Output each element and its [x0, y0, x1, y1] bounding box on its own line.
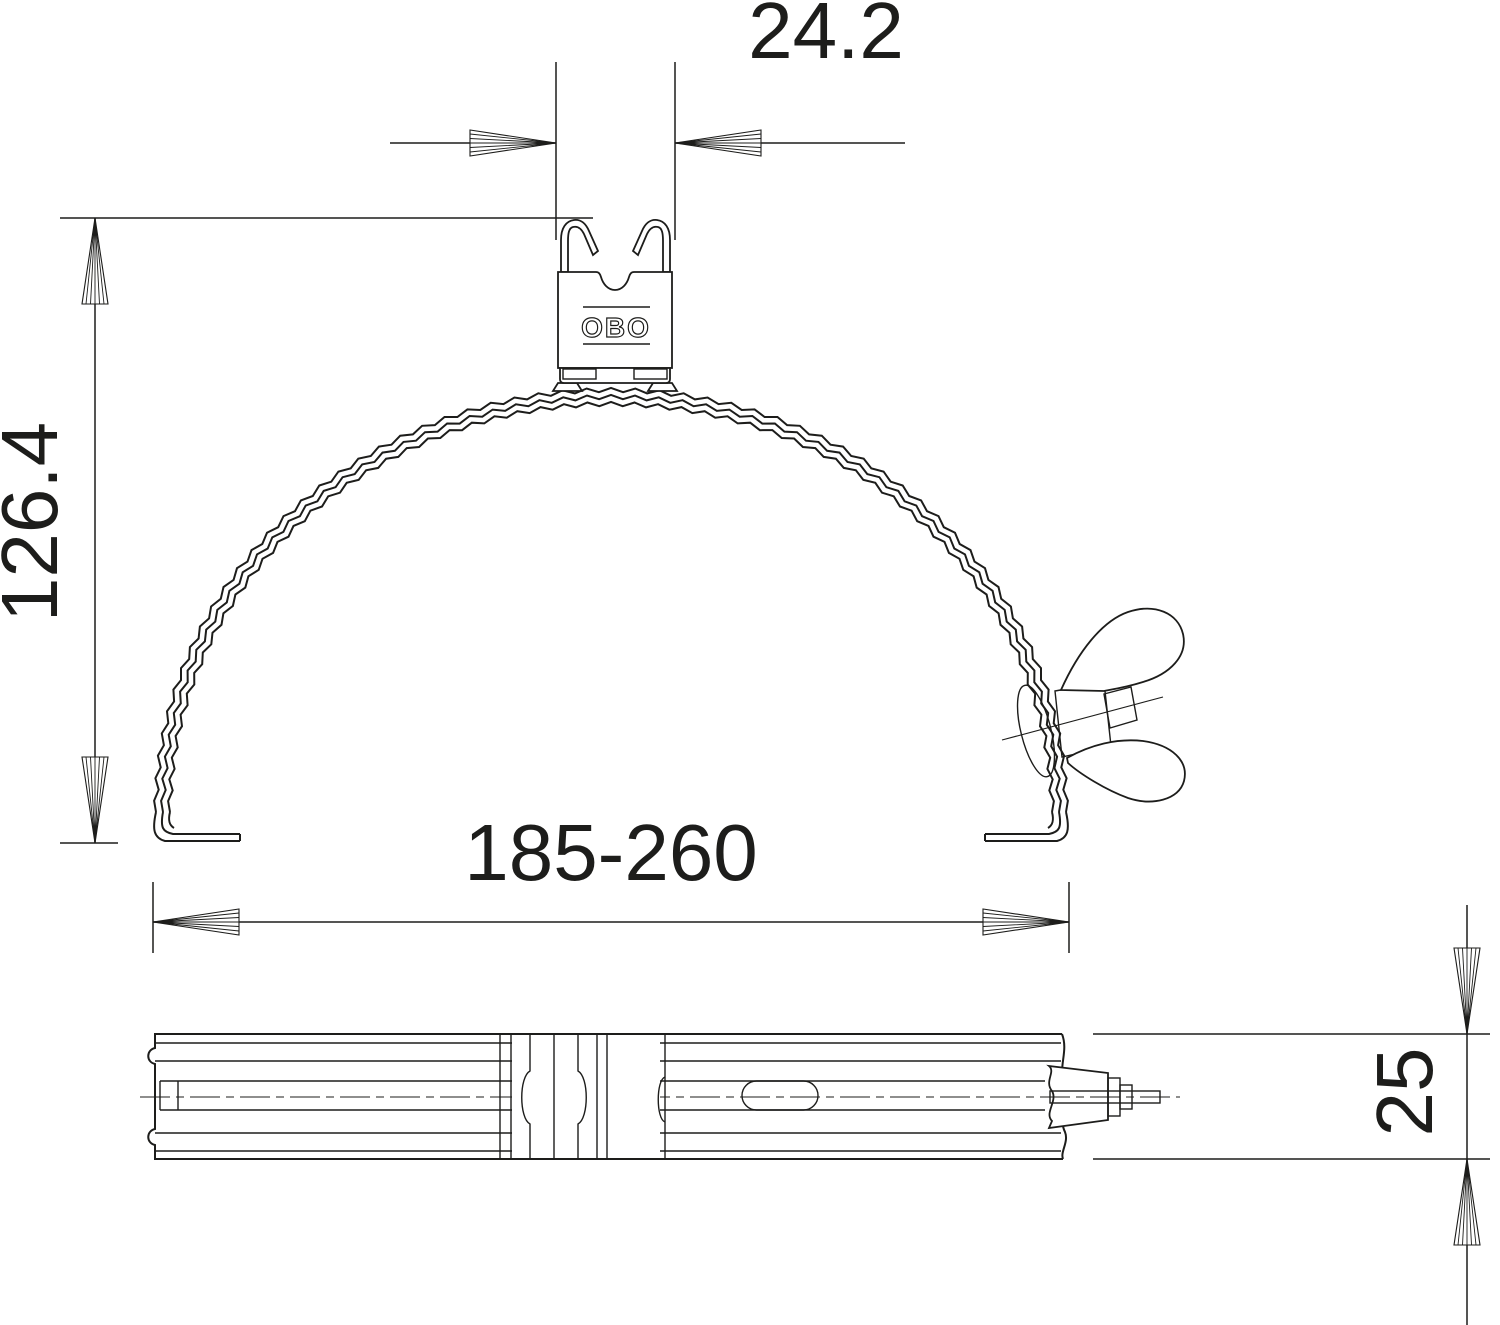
clip-flange: [560, 368, 670, 383]
dimension-arrow: [675, 130, 761, 156]
nut-square: [1104, 687, 1137, 728]
obo-logo: OBO: [581, 307, 651, 344]
band-foot-left: [154, 812, 240, 841]
plan-view: [140, 1034, 1490, 1159]
front-view: OBO: [154, 220, 1185, 841]
dimension-overall-height: 126.4: [0, 218, 593, 843]
wing-nut-plan: [1040, 1066, 1177, 1128]
wing-upper: [1061, 609, 1184, 691]
dome-band: [154, 388, 1068, 841]
dimension-arrow: [82, 757, 108, 843]
logo-text: OBO: [581, 312, 651, 343]
dimension-label-clamping-range: 185-260: [464, 808, 758, 897]
dimension-arrow: [153, 909, 239, 935]
clip-prong-right: [633, 220, 670, 272]
wing-nut-front: [1002, 609, 1185, 802]
dimension-arrow: [82, 218, 108, 304]
dimension-clamping-range: 185-260: [153, 808, 1069, 953]
adjustment-slot: [742, 1081, 818, 1110]
band-arc-outer: [154, 388, 1068, 812]
drawing-canvas: OBO: [0, 0, 1500, 1325]
clip-foot-right: [648, 383, 677, 391]
bolt-axis-line: [1002, 697, 1163, 740]
clip-prong-left: [561, 220, 598, 272]
band-arc-middle: [161, 395, 1061, 812]
clip-plan: [500, 1034, 665, 1159]
clip-foot-left: [553, 383, 582, 391]
dimensions: 24.2 126.4 185-260 25: [0, 0, 1480, 1325]
dimension-arrow: [1454, 1159, 1480, 1245]
dimension-arrow: [983, 909, 1069, 935]
band-arc-inner: [168, 402, 1054, 812]
technical-drawing: OBO: [0, 0, 1500, 1325]
dimension-clip-width: 24.2: [390, 0, 905, 240]
dimension-label-overall-height: 126.4: [0, 422, 74, 622]
dimension-label-band-width: 25: [1360, 1048, 1449, 1137]
dimension-arrow: [470, 130, 556, 156]
dimension-label-clip-width: 24.2: [748, 0, 904, 75]
wing-lower: [1067, 740, 1185, 801]
dimension-arrow: [1454, 948, 1480, 1034]
band-foot-right: [985, 812, 1068, 841]
conductor-clip: OBO: [553, 220, 677, 391]
dimension-band-width: 25: [1360, 905, 1480, 1325]
